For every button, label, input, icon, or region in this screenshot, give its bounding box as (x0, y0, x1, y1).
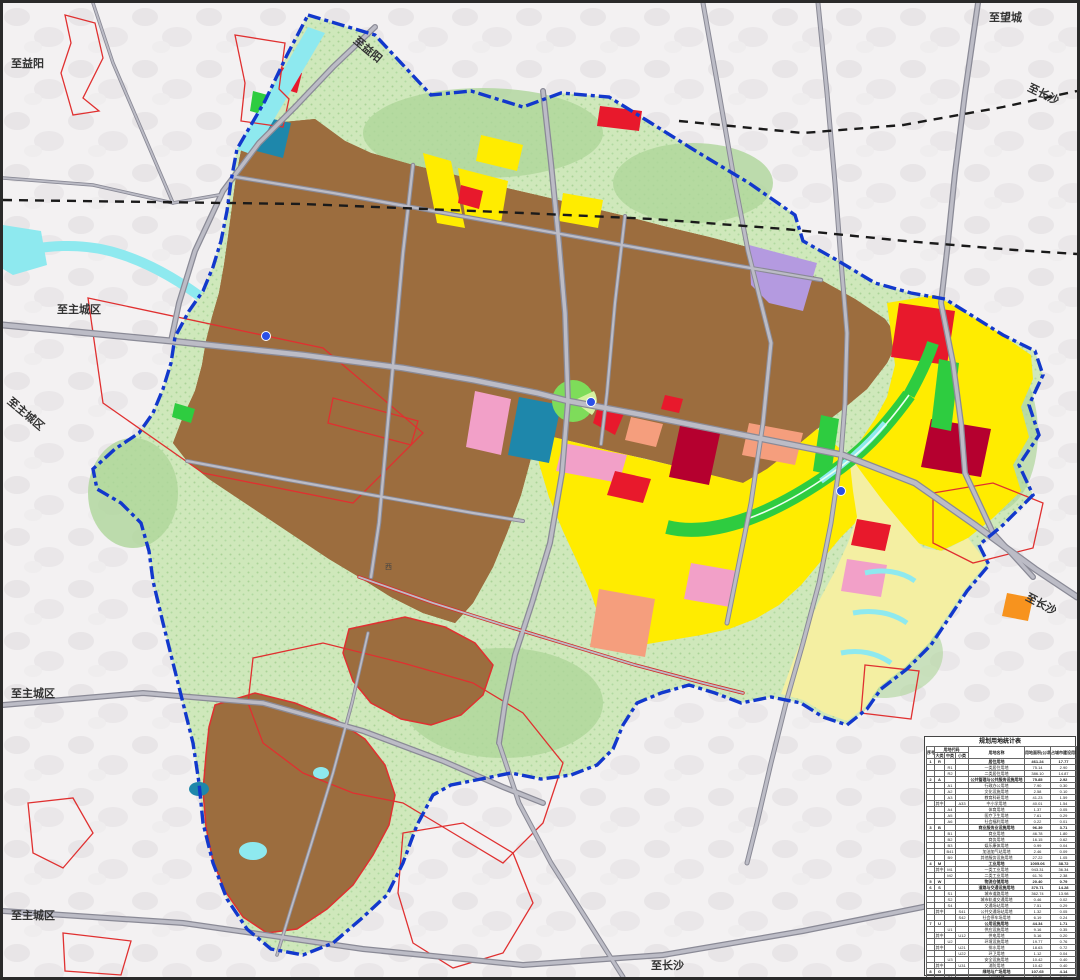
table-title: 规划用地统计表 (926, 738, 1074, 746)
col-header-area: 用地面积(公顷) (1025, 747, 1051, 759)
table-cell: 2.61 (1051, 975, 1077, 980)
col-header-seq: 序号 (927, 747, 935, 759)
edge-label-to-maincity-3: 至主城区 (11, 686, 55, 700)
col-header-name: 用地名称 (969, 747, 1025, 759)
col-header-mid: 中类 (945, 753, 956, 759)
edge-label-to-wangcheng: 至望城 (989, 10, 1022, 24)
table-cell: 其中 (935, 963, 945, 969)
landuse-table-body: 1R居住用地461.2417.77R1一类居住用地75.142.90R2二类居住… (927, 759, 1077, 980)
table-cell: 公共管理与公共服务设施用地 (969, 777, 1025, 783)
table-cell: G1 (945, 975, 956, 980)
table-row: G1公园绿地67.752.61 (927, 975, 1077, 980)
planning-map-canvas: 至益阳 至益阳 至望城 至长沙 至主城区 至主城区 至主城区 至主城区 至长沙 … (0, 0, 1080, 980)
table-cell: 公园绿地 (969, 975, 1025, 980)
edge-label-to-yiyang-left: 至益阳 (11, 56, 44, 70)
table-cell: 其中 (935, 867, 945, 873)
col-header-major: 大类 (935, 753, 945, 759)
edge-label-to-maincity-1: 至主城区 (57, 302, 101, 316)
table-cell: 67.75 (1025, 975, 1051, 980)
table-cell: 其中 (935, 801, 945, 807)
col-header-pct: 占城市建设用地比例(%) (1051, 747, 1077, 759)
table-cell: 其中 (935, 945, 945, 951)
edge-label-to-maincity-4: 至主城区 (11, 908, 55, 922)
table-cell (956, 975, 969, 980)
table-cell: 其中 (935, 933, 945, 939)
road-name-label: 西 (385, 563, 392, 571)
landuse-table: 序号 用地代码 用地名称 用地面积(公顷) 占城市建设用地比例(%) 大类 中类… (926, 746, 1077, 980)
table-cell (927, 975, 935, 980)
edge-label-to-changsha-bottom: 至长沙 (651, 958, 684, 972)
table-cell: 其中 (935, 909, 945, 915)
table-cell (935, 975, 945, 980)
planning-map: 至益阳 至益阳 至望城 至长沙 至主城区 至主城区 至主城区 至主城区 至长沙 … (3, 3, 1077, 977)
table-cell: B41 (945, 849, 956, 855)
landuse-table-panel: 规划用地统计表 序号 用地代码 用地名称 用地面积(公顷) 占城市建设用地比例(… (924, 736, 1076, 976)
